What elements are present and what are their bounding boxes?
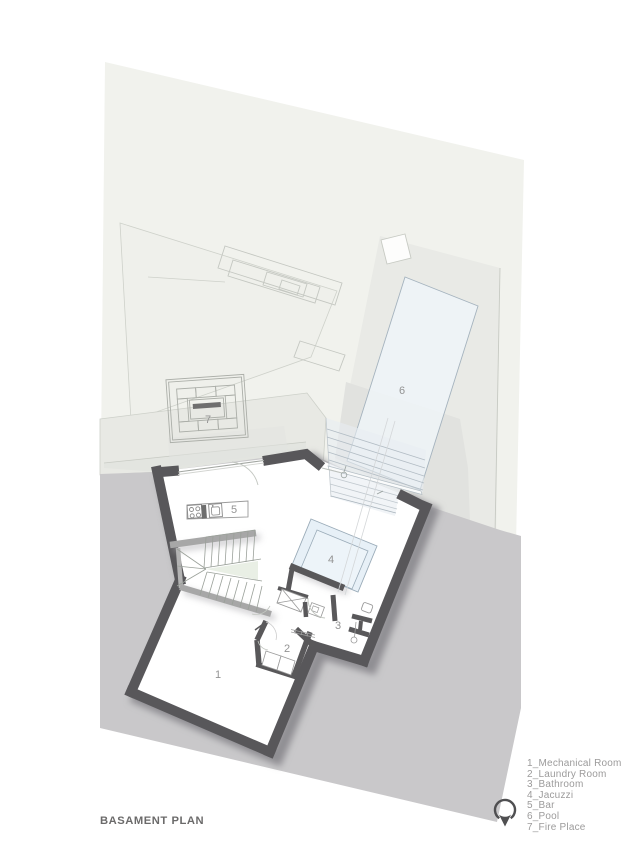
svg-text:2: 2 <box>284 643 290 655</box>
svg-text:3: 3 <box>335 620 341 632</box>
svg-text:7: 7 <box>205 414 211 426</box>
svg-text:1: 1 <box>215 669 221 681</box>
svg-text:4: 4 <box>328 554 334 566</box>
svg-text:6: 6 <box>399 385 405 397</box>
svg-text:5: 5 <box>231 504 237 516</box>
